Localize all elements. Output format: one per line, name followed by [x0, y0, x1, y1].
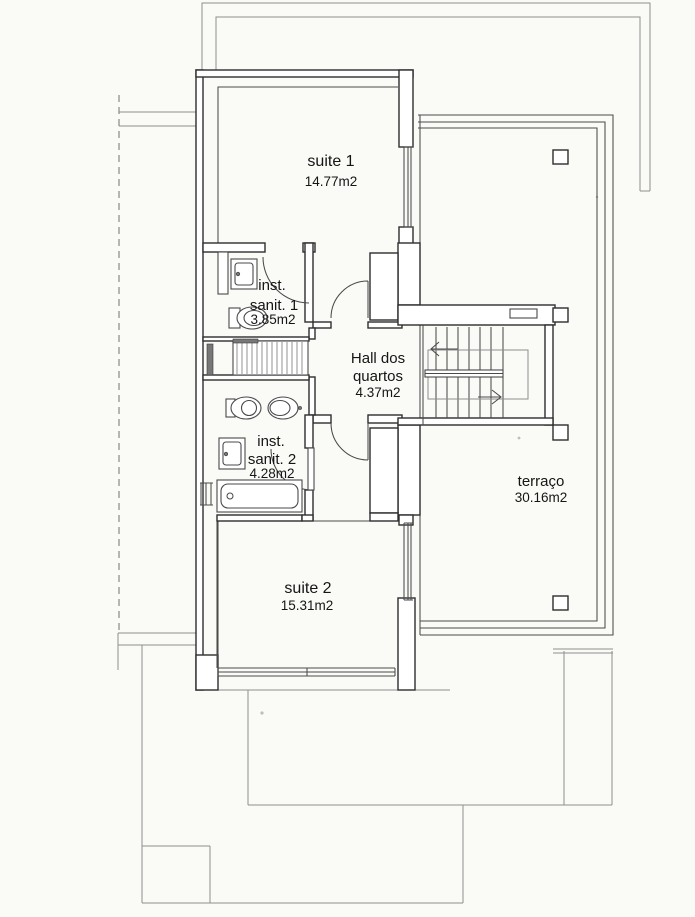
- suite2-bottom-window: [218, 668, 395, 676]
- left-garden-wall-bottom: [118, 633, 200, 670]
- floor-plan-drawing: suite 1 14.77m2 inst. sanit. 1 3.85m2 Ha…: [0, 0, 695, 917]
- terrace-column-bottom: [553, 596, 568, 610]
- top-exterior-wall: [196, 70, 413, 77]
- stair-bottom-wall: [398, 418, 553, 425]
- bidet: [226, 397, 261, 419]
- suite1-right-window: [404, 147, 413, 227]
- washbasin-1: [231, 259, 257, 289]
- terrace-column-top: [553, 150, 568, 164]
- suite2-right-wall-lower: [398, 598, 415, 690]
- scan-speck: [260, 711, 263, 714]
- bathroom1-right-wall: [305, 243, 313, 322]
- hall-left-wall-lower: [309, 377, 315, 415]
- bathtub: [217, 480, 302, 512]
- sanit1-label-line1: inst.: [258, 277, 286, 294]
- roof-outline-outer: [202, 3, 650, 191]
- suite1-name-label: suite 1: [307, 153, 354, 170]
- suite1-area-label: 14.77m2: [305, 174, 358, 189]
- closet-shower-hatch: [233, 339, 308, 375]
- hall-bottom-wall-left: [313, 415, 331, 423]
- bidet-basin: [242, 401, 257, 416]
- sanit2-area-label: 4.28m2: [249, 466, 294, 481]
- suite2-top-wall-left: [217, 515, 302, 521]
- hall-bottom-wall-right: [368, 415, 402, 423]
- hall-area-label: 4.37m2: [355, 385, 400, 400]
- bathroom2-right-wall-upper: [305, 415, 313, 448]
- toilet-2-valve: [298, 406, 301, 409]
- stairwell-window: [510, 309, 537, 318]
- stair-wall-column-bottom: [553, 425, 568, 440]
- sanit1-area-label: 3.85m2: [250, 312, 295, 327]
- wall-vestibule2-right: [398, 425, 420, 515]
- stair-wall-column-top: [553, 308, 568, 322]
- toilet-2: [268, 397, 302, 419]
- vestibule2-stair-wall: [370, 428, 398, 513]
- hall-label-line1: Hall dos: [351, 350, 405, 367]
- lower-terrace-outline: [142, 805, 463, 903]
- vestibule2-door-arc: [331, 423, 368, 460]
- staircase: [423, 325, 528, 425]
- suite2-top-wall-right: [370, 513, 398, 521]
- vestibule1-stair-wall: [370, 253, 398, 320]
- suite2-top-wall-mid: [302, 515, 313, 521]
- suite2-area-label: 15.31m2: [281, 598, 334, 613]
- suite1-bottom-wall-left: [203, 243, 265, 252]
- hall-label-line2: quartos: [353, 368, 403, 385]
- sanit2-label-line1: inst.: [257, 433, 285, 450]
- hall-top-wall-left: [313, 322, 331, 328]
- left-garden-wall-top: [119, 112, 196, 126]
- scan-speck: [518, 437, 521, 440]
- roof-outline-inner: [216, 17, 640, 191]
- hall-left-wall-upper: [309, 328, 315, 339]
- terraco-area-label: 30.16m2: [515, 490, 568, 505]
- terraco-name-label: terraço: [518, 473, 565, 490]
- washbasin-2-tap: [224, 452, 228, 456]
- left-exterior-wall: [196, 70, 203, 690]
- wall-vestibule1-right: [398, 243, 420, 305]
- suite2-name-label: suite 2: [284, 580, 331, 597]
- floor-plan-page: suite 1 14.77m2 inst. sanit. 1 3.85m2 Ha…: [0, 0, 695, 917]
- vestibule1-door-arc: [331, 281, 368, 318]
- hatch-sill: [233, 339, 258, 343]
- toilet-2-seat: [270, 401, 290, 416]
- suite2-left-wall-stub: [196, 655, 218, 690]
- suite2-right-window: [404, 523, 413, 600]
- stair-right-wall: [545, 325, 553, 425]
- washbasin-1-tap: [236, 272, 240, 276]
- bathroom2-door-leaf: [308, 448, 314, 490]
- roof-edge-bottom-right: [553, 649, 613, 653]
- bathroom2-top-wall: [203, 375, 309, 380]
- suite1-right-wall-upper: [399, 70, 413, 147]
- cabinet-1: [218, 252, 228, 294]
- washbasin-2: [219, 438, 245, 469]
- closet-wall-stub: [207, 344, 213, 375]
- hall-top-wall-right: [368, 322, 402, 328]
